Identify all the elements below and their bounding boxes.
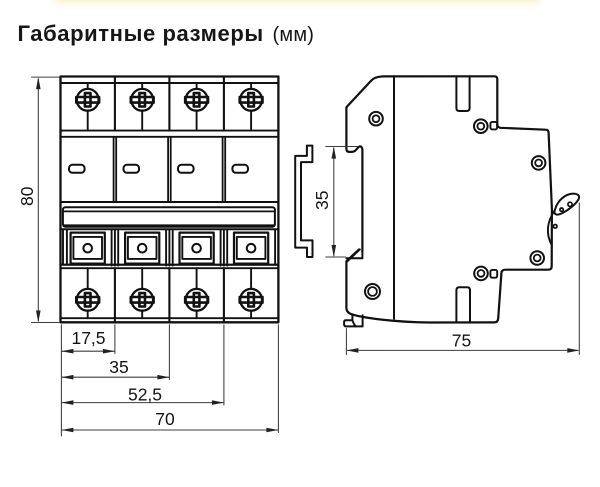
svg-text:75: 75 (452, 331, 471, 351)
svg-text:52,5: 52,5 (128, 384, 162, 404)
svg-text:70: 70 (155, 409, 175, 429)
svg-text:17,5: 17,5 (71, 328, 105, 348)
svg-text:35: 35 (109, 357, 128, 377)
svg-text:80: 80 (17, 186, 37, 206)
svg-text:35: 35 (312, 191, 332, 210)
